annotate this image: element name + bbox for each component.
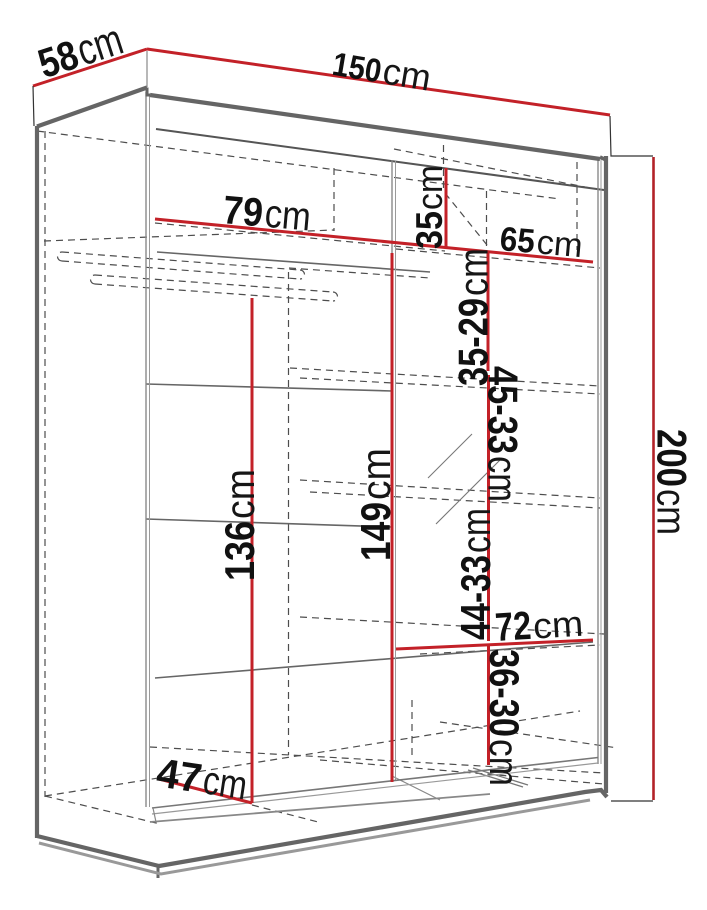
svg-text:cm: cm [649,489,695,535]
svg-text:cm: cm [453,508,499,553]
svg-text:72: 72 [494,604,533,650]
svg-text:45-33: 45-33 [480,366,527,454]
svg-text:cm: cm [217,469,263,519]
svg-text:65: 65 [498,220,536,261]
svg-text:200: 200 [649,429,696,487]
svg-text:cm: cm [451,248,497,296]
svg-text:35: 35 [409,211,450,249]
svg-text:cm: cm [535,223,584,265]
svg-text:cm: cm [200,758,250,808]
svg-text:cm: cm [380,50,434,98]
svg-text:136: 136 [216,521,263,581]
svg-text:cm: cm [409,165,450,210]
svg-text:44-33: 44-33 [452,555,499,640]
svg-text:cm: cm [481,739,527,786]
svg-text:149: 149 [352,502,399,561]
svg-text:47: 47 [154,749,205,801]
svg-text:79: 79 [221,188,265,235]
svg-text:cm: cm [353,448,399,500]
svg-text:36-30: 36-30 [481,649,528,737]
svg-text:cm: cm [263,192,313,240]
svg-text:cm: cm [480,456,526,502]
svg-text:cm: cm [532,603,584,647]
